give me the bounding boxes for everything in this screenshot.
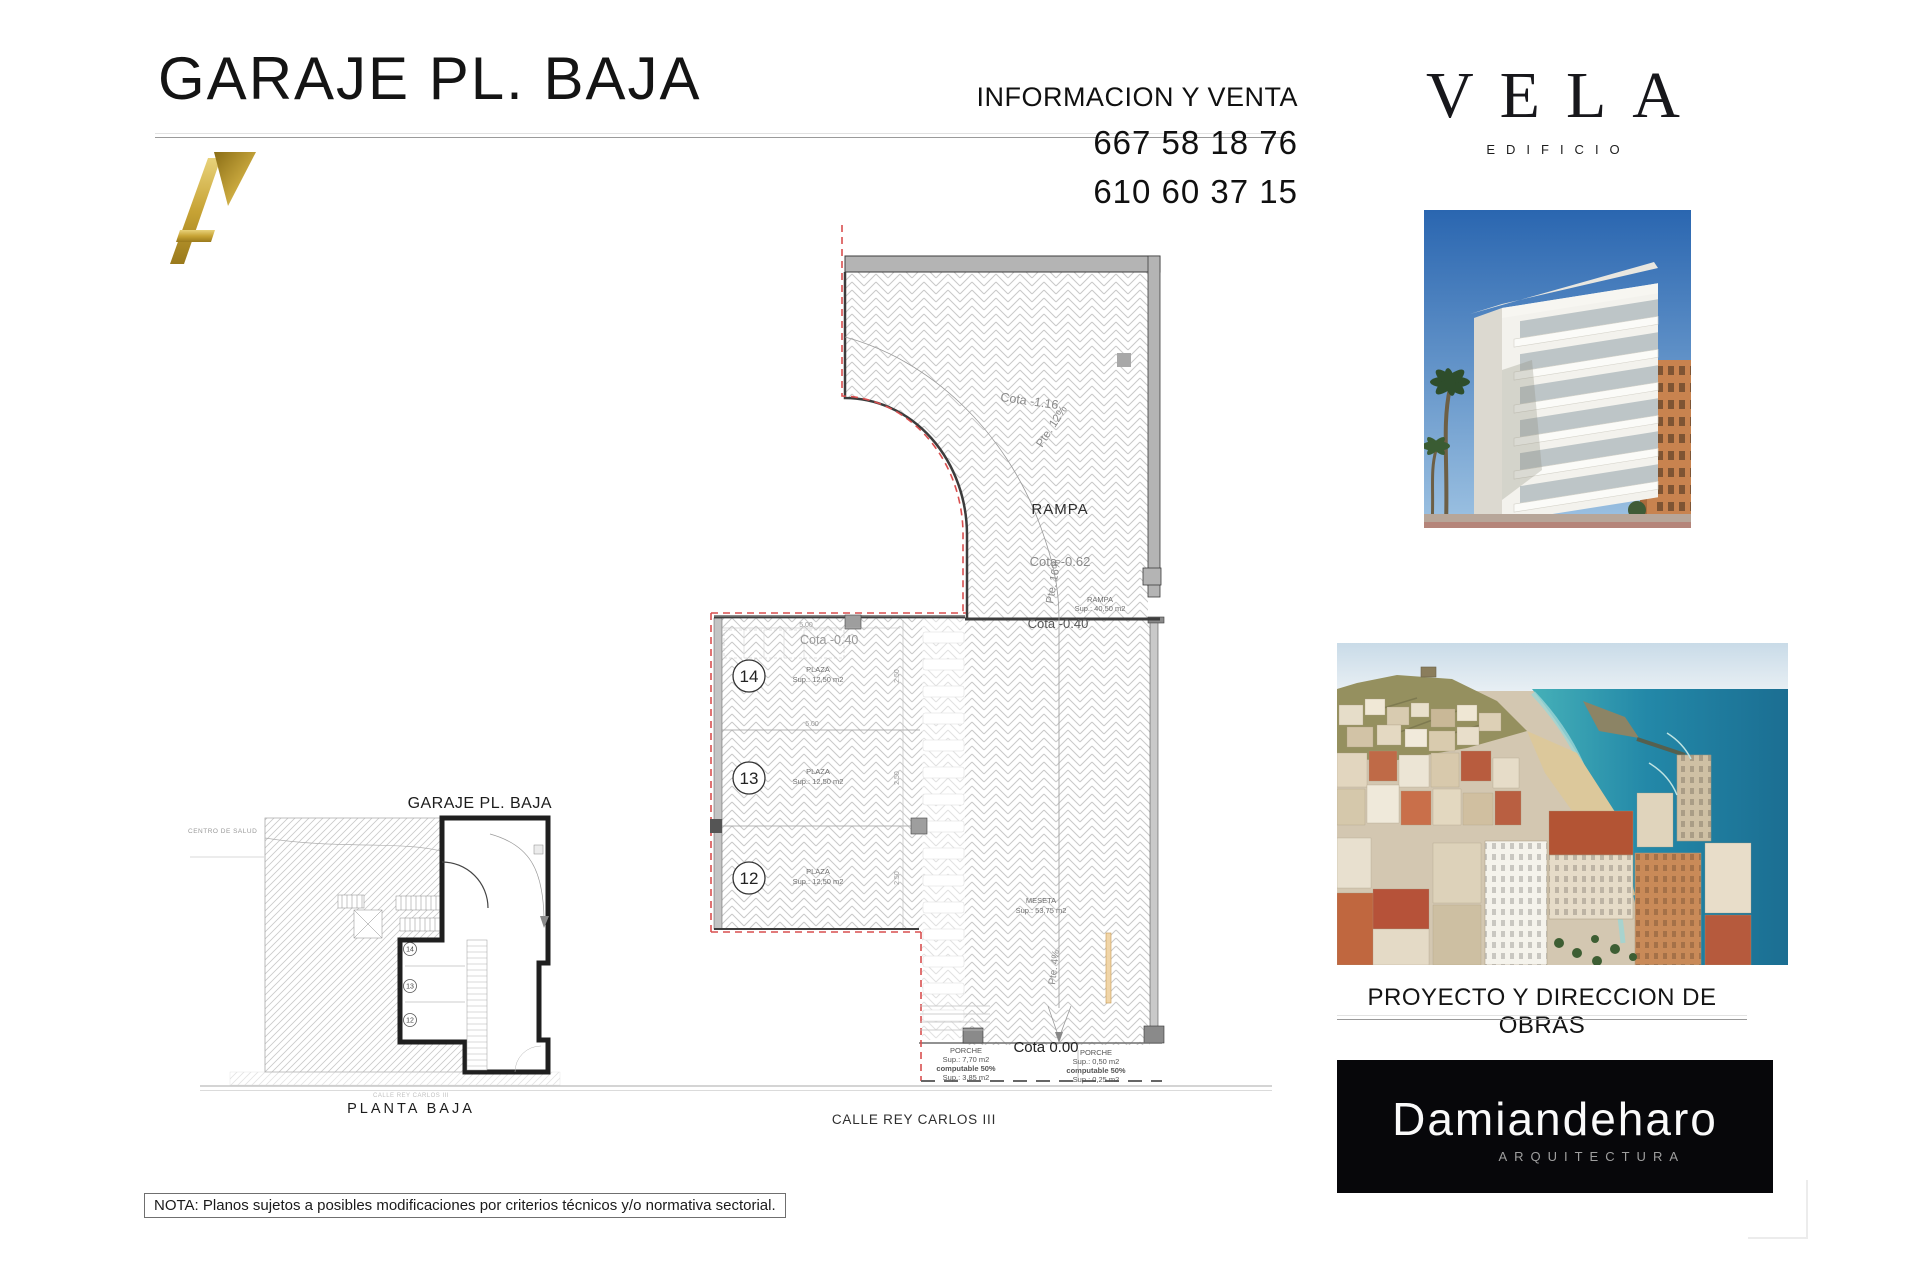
overview-caption: PLANTA BAJA	[347, 1101, 475, 1117]
cota-entry-label: Cota -0.40	[1028, 616, 1089, 631]
architect-logo-box: Damiandeharo ARQUITECTURA	[1337, 1060, 1773, 1193]
space-depth: 2.50	[894, 871, 901, 885]
porche-label: PORCHE	[950, 1046, 982, 1055]
space-number: 12	[740, 869, 759, 888]
dim-width-top: 5.00	[799, 622, 813, 629]
dim-width-mid: 5.00	[805, 721, 819, 728]
architect-subtitle: ARQUITECTURA	[1337, 1149, 1773, 1164]
overview-space-number: 12	[406, 1018, 414, 1025]
floor-plans: Cota -1.16 Pte. 12% RAMPA Cota -0.62 Pte…	[100, 200, 1340, 1140]
ramp-area-label: RAMPA	[1087, 595, 1113, 604]
porche-note: computable 50%	[936, 1064, 996, 1073]
overview-space-number: 13	[406, 984, 414, 991]
brand-subtitle: EDIFICIO	[1398, 142, 1708, 157]
contact-heading: INFORMACION Y VENTA	[676, 82, 1298, 113]
cota-zero-label: Cota 0.00	[1013, 1039, 1078, 1056]
frame-corner	[1748, 1180, 1808, 1239]
overview-space-number: 14	[406, 947, 414, 954]
porche-sup: Sup.: 7,70 m2	[943, 1055, 990, 1064]
page-title: GARAJE PL. BAJA	[158, 44, 702, 113]
overview-stairs	[467, 940, 487, 1070]
street-lines	[200, 1086, 1272, 1091]
contact-block: INFORMACION Y VENTA 667 58 18 76 610 60 …	[676, 82, 1298, 211]
photo-sidewalk	[1424, 522, 1691, 528]
overview-space-14: 14	[404, 943, 417, 956]
brand-name: VELA	[1398, 58, 1708, 134]
overview-space-12: 12	[404, 1014, 417, 1027]
overview-column	[534, 845, 543, 854]
plan-sheet: GARAJE PL. BAJA INFORMACION Y VENTA 667 …	[0, 0, 1920, 1280]
space-sup: Sup.: 12,50 m2	[793, 877, 844, 886]
space-label: PLAZA	[806, 767, 830, 776]
space-label: PLAZA	[806, 665, 830, 674]
space-sup: Sup.: 12,50 m2	[793, 675, 844, 684]
photo-street	[1424, 514, 1691, 522]
porche-note: computable 50%	[1066, 1066, 1126, 1075]
porche-sup2: Sup.: 0,25 m2	[1073, 1075, 1120, 1084]
overview-title: GARAJE PL. BAJA	[408, 795, 552, 812]
space-number: 14	[740, 667, 759, 686]
porche-sup: Sup.: 0,50 m2	[1073, 1057, 1120, 1066]
column	[1117, 353, 1131, 367]
architect-divider	[1337, 1015, 1747, 1020]
overview-left-label: CENTRO DE SALUD	[188, 828, 257, 835]
aerial-photo	[1337, 643, 1788, 965]
column	[845, 615, 861, 629]
ramp-label: RAMPA	[1031, 501, 1088, 518]
overview-street-label: CALLE REY CARLOS III	[373, 1093, 449, 1099]
ramp-area-sup: Sup.: 40,50 m2	[1075, 604, 1126, 613]
main-plan: Cota -1.16 Pte. 12% RAMPA Cota -0.62 Pte…	[710, 225, 1164, 1084]
overview-plan: 14 13 12 GARAJE PL. BAJA CENTRO DE SALUD…	[188, 795, 560, 1117]
architect-heading: PROYECTO Y DIRECCION DE OBRAS	[1337, 984, 1747, 1040]
meseta-sup: Sup.: 53,75 m2	[1016, 906, 1067, 915]
brand-block: VELA EDIFICIO	[1398, 58, 1708, 157]
meseta-label: MESETA	[1026, 896, 1056, 905]
space-sup: Sup.: 12,50 m2	[793, 777, 844, 786]
ramp-hatch	[845, 272, 1148, 618]
note-box: NOTA: Planos sujetos a posibles modifica…	[144, 1193, 786, 1218]
cota-topleft-label: Cota -0.40	[800, 633, 858, 647]
overview-space-13: 13	[404, 980, 417, 993]
street-label: CALLE REY CARLOS III	[832, 1112, 996, 1127]
phone-number-1: 667 58 18 76	[676, 124, 1298, 162]
porche-left-note: PORCHE Sup.: 7,70 m2 computable 50% Sup.…	[936, 1046, 996, 1082]
space-depth: 2.50	[894, 669, 901, 683]
architect-name: Damiandeharo	[1337, 1092, 1773, 1146]
porche-label: PORCHE	[1080, 1048, 1112, 1057]
door-leaf	[1106, 933, 1111, 1003]
space-number: 13	[740, 769, 759, 788]
monogram-triangle	[214, 152, 256, 206]
building-photo	[1424, 210, 1691, 528]
column	[911, 818, 927, 834]
space-depth: 2.50	[894, 771, 901, 785]
walkway-strip	[922, 618, 965, 1040]
porche-sup2: Sup.: 3,85 m2	[943, 1073, 990, 1082]
space-label: PLAZA	[806, 867, 830, 876]
column	[710, 819, 722, 833]
